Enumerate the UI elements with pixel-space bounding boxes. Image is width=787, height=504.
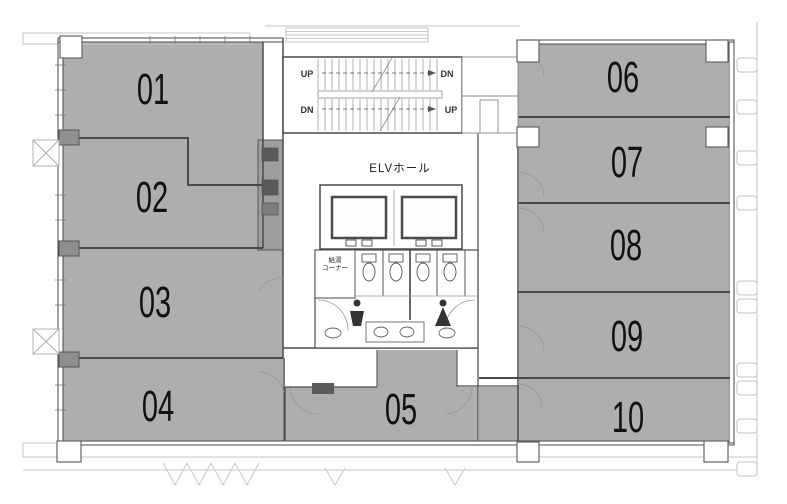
room-01-label: 01 <box>137 68 169 112</box>
roof-louver <box>286 28 428 42</box>
facade-window-boxes <box>33 140 59 354</box>
room-09-label: 09 <box>611 315 643 359</box>
stair-up-top-label: UP <box>301 69 314 79</box>
room-10-area <box>479 379 728 441</box>
room-05-area <box>285 350 478 441</box>
canopy-triangle-right <box>445 468 465 485</box>
pillar-room05 <box>312 383 334 394</box>
duct-room <box>462 57 518 133</box>
room-04-label: 04 <box>142 385 174 429</box>
pantry-label-line2: コーナー <box>322 264 348 272</box>
entrance-zigzag <box>163 463 259 485</box>
pantry-label-line1: 給湯 <box>329 255 343 264</box>
room-10-label: 10 <box>612 396 644 440</box>
room-08-label: 08 <box>610 224 642 268</box>
top-wall-right <box>518 40 734 44</box>
elv-hall-label: ELVホール <box>369 162 430 175</box>
stairwell: UP DN DN UP <box>283 57 462 133</box>
right-wall <box>729 42 734 443</box>
stair-dn-top-label: DN <box>441 69 454 79</box>
right-vent-symbols <box>737 58 757 476</box>
room-02-label: 02 <box>136 176 168 220</box>
top-wall-left <box>58 38 283 42</box>
elevator-block <box>320 185 462 249</box>
bottom-left-eaves <box>23 443 62 457</box>
room-07-label: 07 <box>611 141 643 185</box>
room-03-label: 03 <box>139 281 171 325</box>
elevator-car-right <box>402 197 456 238</box>
stair-up-bottom-label: UP <box>445 105 458 115</box>
room-05-label: 05 <box>385 388 417 432</box>
canopy-triangle-left <box>325 468 345 485</box>
room-06-label: 06 <box>607 56 639 100</box>
elevator-car-left <box>332 197 386 238</box>
floor-plan-canvas: UP DN DN UP ELVホール 給湯 コーナー <box>0 0 787 504</box>
stair-dn-bottom-label: DN <box>301 105 314 115</box>
pipe-shaft-boxes <box>262 148 278 215</box>
toilet-block: 給湯 コーナー <box>315 250 478 348</box>
stair-mid-rail <box>318 91 442 98</box>
room-03-area <box>63 248 283 358</box>
